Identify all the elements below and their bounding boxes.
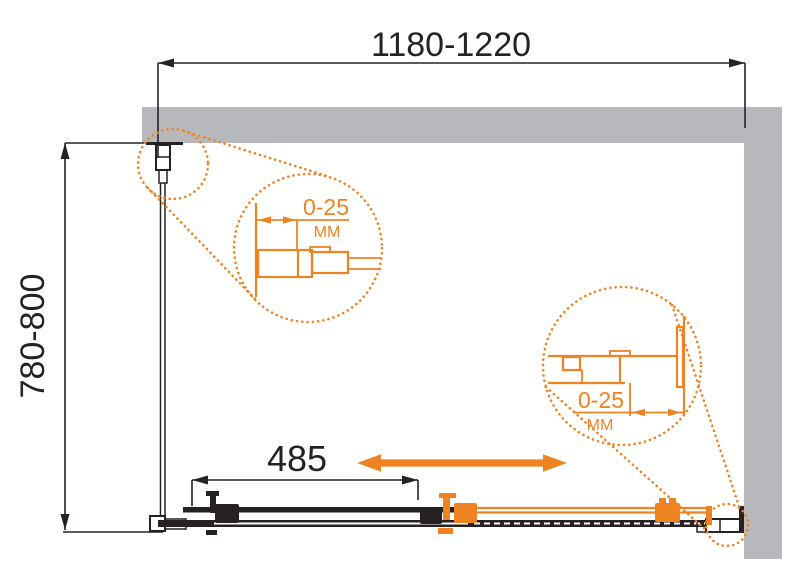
door-opening-dimension: 485: [192, 438, 418, 506]
walls: [142, 107, 782, 559]
side-panel: [146, 144, 183, 518]
callout-left: 0-25 MM: [138, 129, 382, 322]
door-bracket: [443, 497, 450, 520]
roller-left: [215, 504, 239, 523]
callout-left-unit: MM: [314, 224, 341, 241]
depth-dimension: 780-800: [14, 143, 163, 532]
door-roller-rear: [655, 503, 680, 522]
double-arrow-icon: [357, 454, 567, 472]
arrowhead-left: [158, 59, 174, 68]
top-wall: [142, 107, 782, 143]
callout-right-value: 0-25: [578, 387, 624, 413]
roller-center-black: [420, 507, 442, 524]
slide-direction-arrow: [357, 454, 567, 472]
arrowhead-right: [729, 59, 745, 68]
profile-detail-left: 0-25 MM: [256, 194, 381, 297]
arrowhead-bottom: [61, 514, 70, 530]
sliding-door: [420, 493, 712, 534]
door-opening-label: 485: [267, 438, 327, 479]
diagram-svg: 1180-1220 780-800: [0, 0, 800, 576]
shower-enclosure-dimension-diagram: 1180-1220 780-800: [0, 0, 800, 576]
depth-dimension-label: 780-800: [14, 274, 52, 399]
right-wall: [744, 107, 782, 559]
arrowhead-left: [192, 476, 208, 485]
profile-detail-right: 0-25 MM: [548, 316, 684, 434]
arrowhead-top: [61, 143, 70, 159]
callout-right-unit: MM: [587, 417, 614, 434]
callout-left-value: 0-25: [303, 194, 349, 220]
width-dimension-label: 1180-1220: [371, 26, 531, 64]
arrowhead-right: [402, 476, 418, 485]
